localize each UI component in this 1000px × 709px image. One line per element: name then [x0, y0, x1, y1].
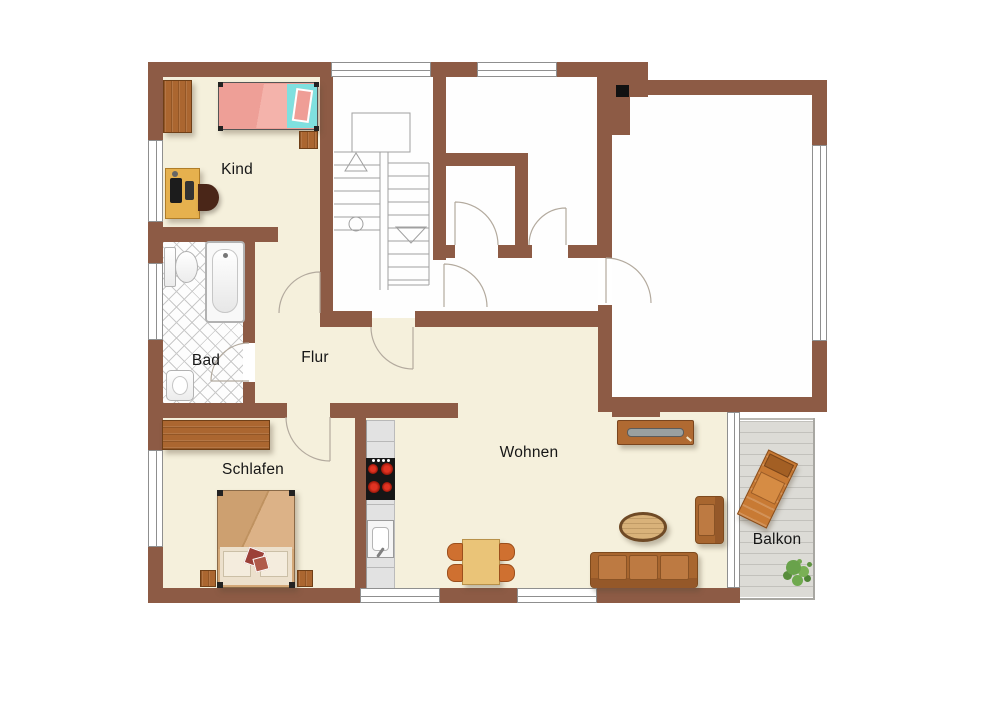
- wall: [148, 588, 360, 603]
- bed-post: [217, 490, 223, 496]
- armchair-cushion: [698, 504, 715, 536]
- cooktop-burner: [381, 463, 393, 475]
- nightstand: [297, 570, 313, 587]
- balcony-glazing: [727, 412, 740, 588]
- dining-chair: [447, 564, 463, 582]
- bed-post: [218, 126, 223, 131]
- wall: [431, 62, 477, 77]
- bed-blanket: [218, 491, 294, 549]
- wall: [597, 588, 740, 603]
- sofa-cushion: [629, 555, 658, 580]
- sideboard: [617, 420, 694, 445]
- room-label-schlafen: Schlafen: [222, 461, 284, 479]
- cooktop-burner: [368, 481, 380, 493]
- wall: [440, 588, 517, 603]
- bathtub-basin: [212, 249, 238, 313]
- nightstand: [299, 131, 318, 149]
- window: [148, 140, 163, 222]
- sideboard-inset: [627, 428, 684, 437]
- bed-post: [314, 82, 319, 87]
- wall: [355, 418, 366, 588]
- cooktop-burner: [368, 464, 378, 474]
- cooktop: [366, 458, 395, 500]
- armchair: [695, 496, 724, 544]
- window: [360, 588, 440, 603]
- washbasin: [166, 370, 194, 401]
- window: [148, 450, 163, 547]
- wall: [630, 80, 815, 95]
- chimney: [616, 85, 629, 97]
- bed-post: [217, 582, 223, 588]
- wall: [148, 340, 163, 450]
- room-label-wohnen: Wohnen: [500, 444, 559, 462]
- balcony-railing-top: [740, 418, 814, 420]
- plant: [786, 560, 801, 575]
- kitchen-sink-bowl: [372, 527, 389, 551]
- window: [517, 588, 597, 603]
- double-bed: [217, 490, 295, 588]
- wall: [148, 62, 331, 77]
- bathtub-drain: [223, 253, 228, 258]
- window: [812, 145, 827, 341]
- wall: [612, 402, 660, 417]
- bed-post: [289, 490, 295, 496]
- coffee-table: [619, 512, 667, 542]
- desk-computer: [170, 178, 182, 203]
- nightstand: [200, 570, 216, 587]
- wall: [148, 403, 287, 418]
- desk-monitor: [185, 181, 194, 200]
- wall: [433, 77, 446, 260]
- kitchenette-counter: [366, 420, 395, 588]
- wall: [598, 305, 612, 402]
- room-label-flur: Flur: [301, 349, 329, 367]
- sofa: [590, 552, 698, 588]
- cooktop-knobs: [372, 459, 375, 462]
- wall: [498, 245, 532, 258]
- wall: [812, 80, 827, 145]
- toilet: [175, 251, 198, 283]
- wardrobe: [162, 420, 270, 450]
- wall: [433, 245, 455, 258]
- desk: [165, 168, 200, 219]
- dining-table: [462, 539, 500, 585]
- lounge-chair-seat: [751, 471, 786, 504]
- single-bed: [218, 82, 318, 130]
- stairwell-floor: [333, 77, 598, 318]
- balcony-railing-right: [813, 418, 815, 600]
- wardrobe: [163, 80, 192, 133]
- dining-chair: [499, 564, 515, 582]
- kitchen-sink: [367, 520, 394, 558]
- wall: [597, 62, 612, 258]
- room-label-balkon: Balkon: [753, 531, 802, 549]
- bathtub: [205, 241, 245, 323]
- sofa-cushion: [660, 555, 689, 580]
- dining-chair: [447, 543, 463, 561]
- wall: [415, 311, 598, 327]
- window: [148, 263, 163, 340]
- wall: [330, 403, 458, 418]
- wall: [568, 245, 598, 258]
- window: [331, 62, 431, 77]
- washbasin-bowl: [172, 376, 188, 395]
- room-label-kind: Kind: [221, 161, 253, 179]
- bed-blanket: [220, 84, 288, 128]
- wall: [443, 153, 528, 166]
- dining-chair: [499, 543, 515, 561]
- desk-lamp: [172, 171, 178, 177]
- armchair-backrest: [715, 497, 723, 543]
- room-label-bad: Bad: [192, 352, 220, 370]
- sofa-cushion: [598, 555, 627, 580]
- floor-plan: Kind Bad Flur Schlafen Wohnen Balkon: [0, 0, 1000, 709]
- wall: [320, 77, 333, 312]
- wall: [320, 311, 372, 327]
- bed-post: [289, 582, 295, 588]
- room-top-right-floor: [612, 95, 812, 397]
- balcony-railing-bottom: [740, 598, 815, 600]
- wall: [148, 227, 278, 242]
- window: [477, 62, 557, 77]
- sideboard-handle: [686, 436, 692, 441]
- bed-post: [218, 82, 223, 87]
- wall: [243, 382, 255, 403]
- cooktop-burner: [382, 482, 392, 492]
